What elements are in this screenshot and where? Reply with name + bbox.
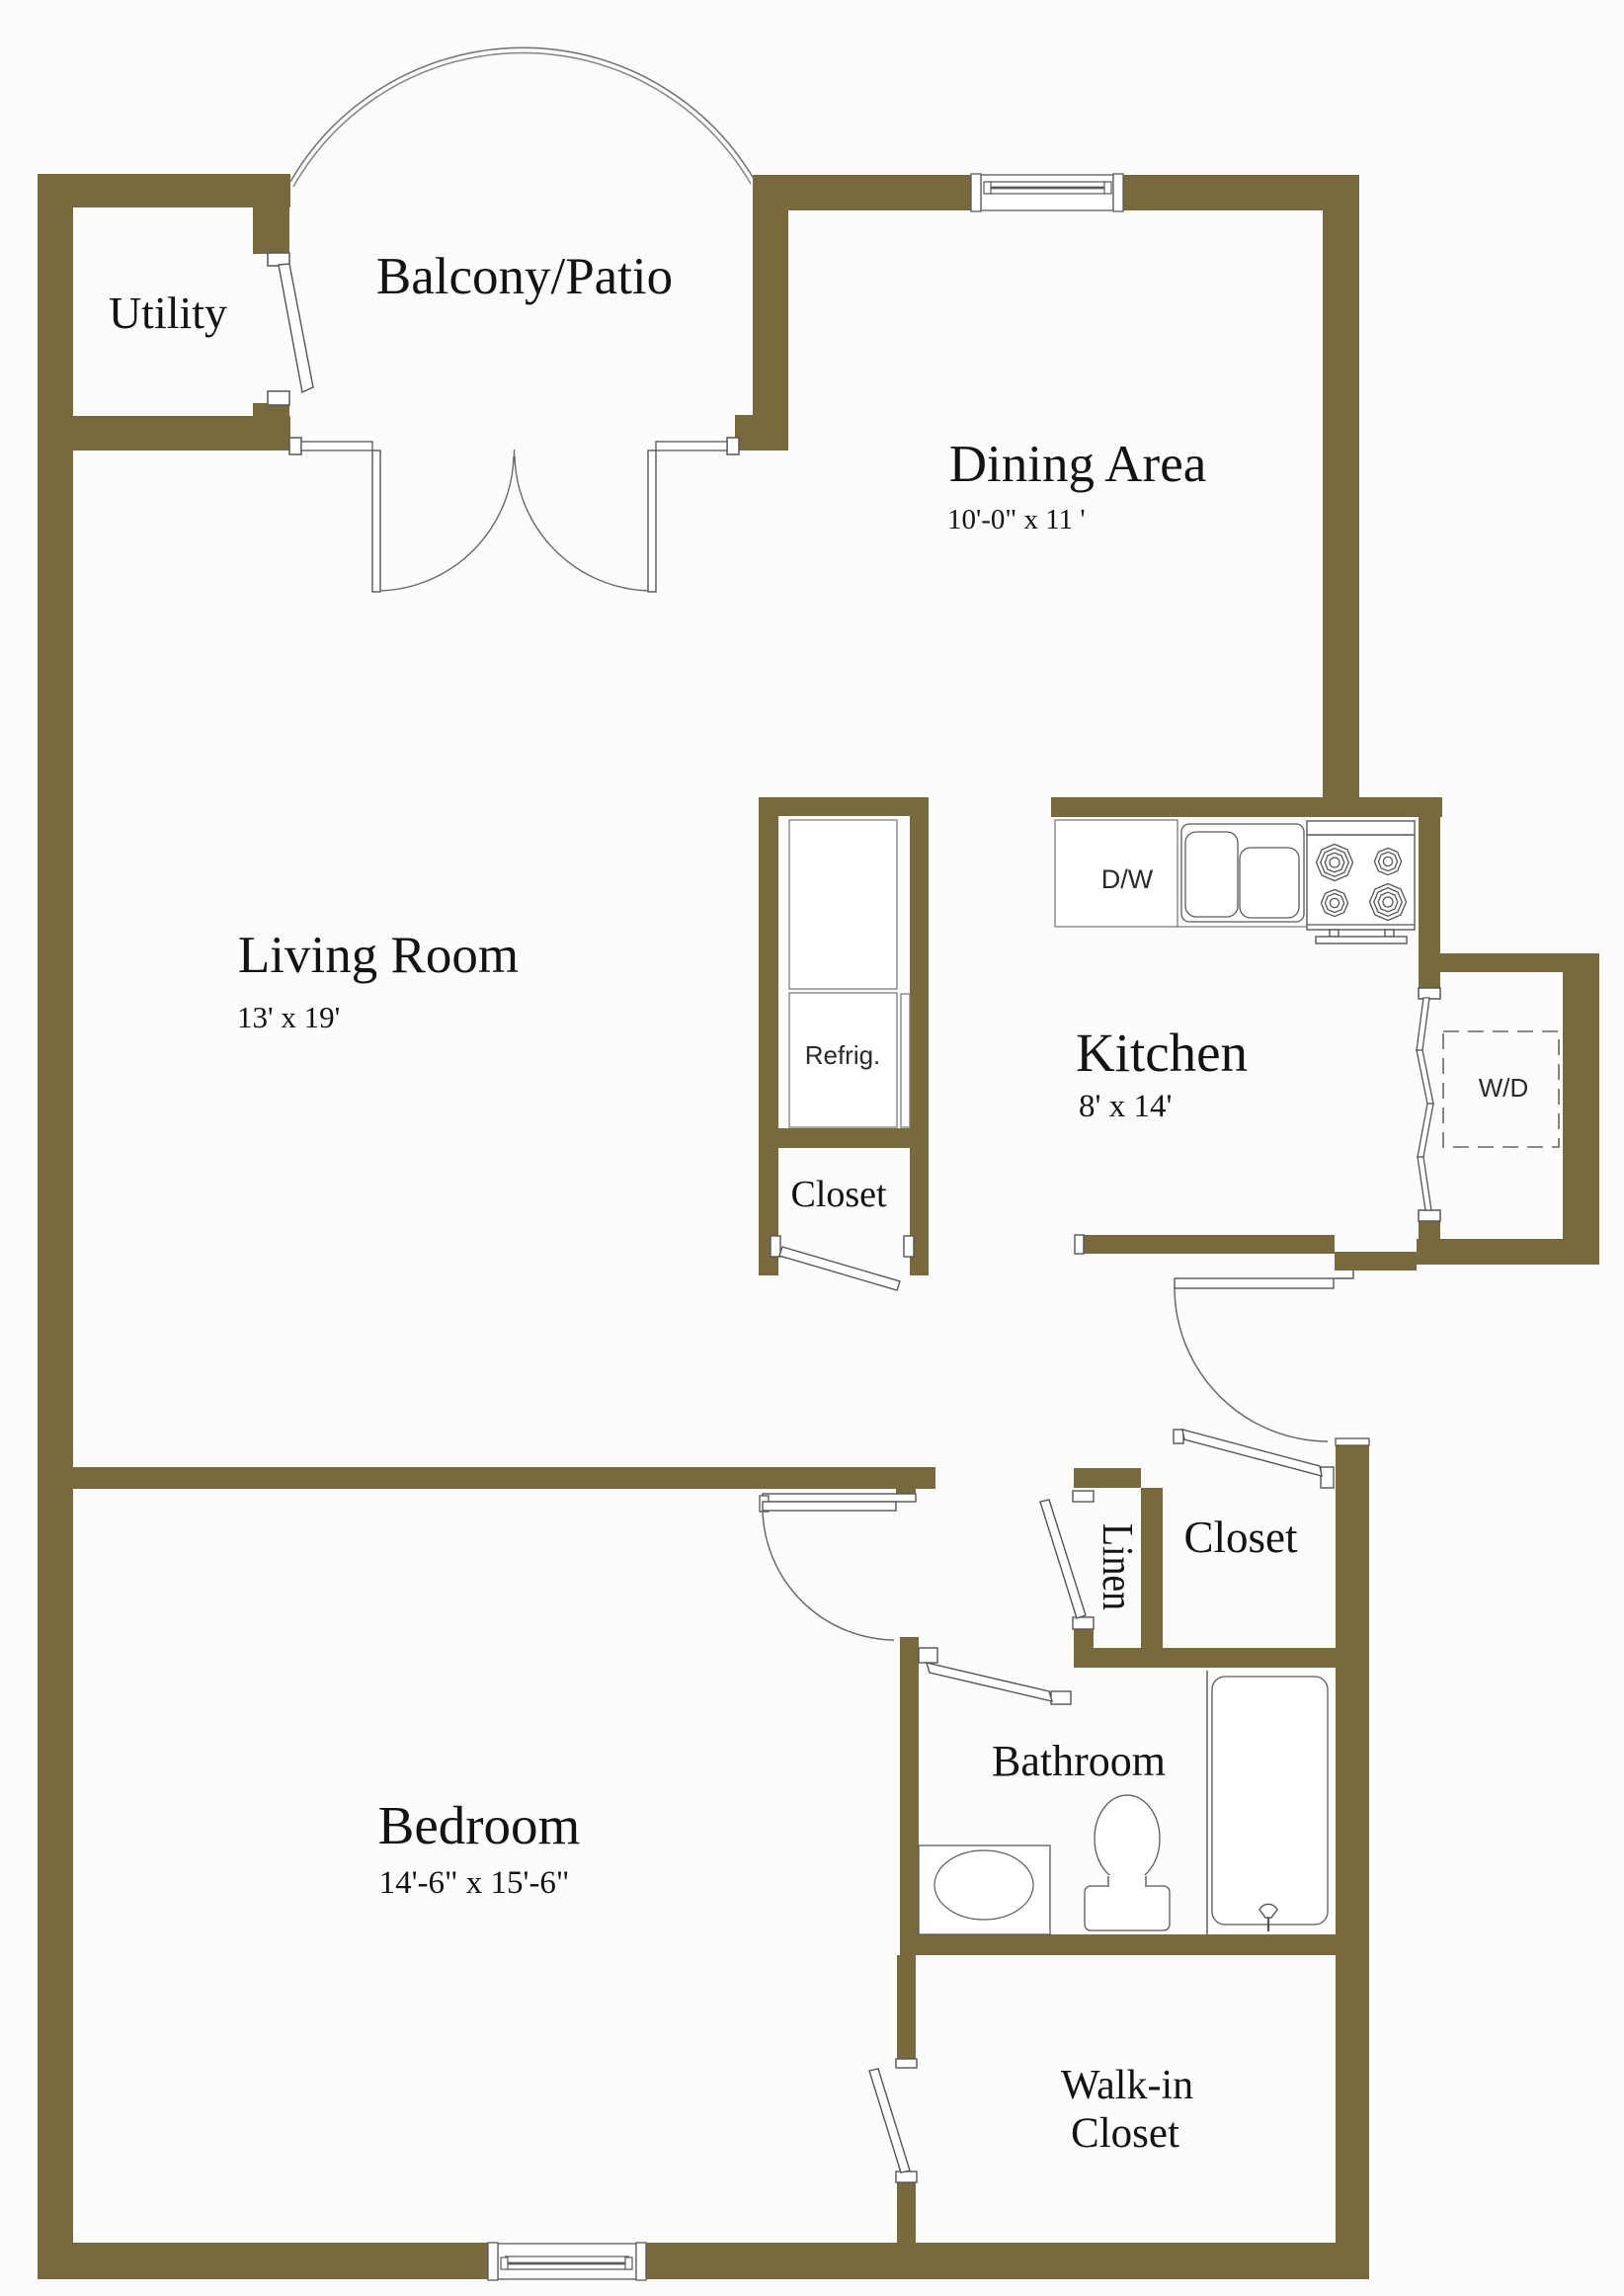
svg-text:Closet: Closet [1183, 1513, 1298, 1562]
svg-text:Bathroom: Bathroom [992, 1737, 1166, 1785]
svg-text:Balcony/Patio: Balcony/Patio [376, 248, 673, 305]
svg-text:Dining Area: Dining Area [949, 436, 1207, 493]
svg-text:D/W: D/W [1101, 864, 1154, 894]
svg-text:10'-0" x 11 ': 10'-0" x 11 ' [947, 504, 1086, 535]
svg-text:Utility: Utility [109, 287, 227, 338]
svg-text:Closet: Closet [790, 1174, 887, 1215]
svg-text:Closet: Closet [1071, 2110, 1179, 2157]
svg-text:W/D: W/D [1479, 1073, 1529, 1103]
svg-text:8' x 14': 8' x 14' [1079, 1089, 1172, 1124]
svg-text:Living Room: Living Room [238, 927, 519, 984]
svg-text:Refrig.: Refrig. [805, 1040, 881, 1070]
svg-text:13' x 19': 13' x 19' [237, 1000, 340, 1034]
svg-text:Bedroom: Bedroom [378, 1795, 581, 1855]
svg-text:Kitchen: Kitchen [1076, 1023, 1248, 1083]
svg-text:14'-6" x 15'-6": 14'-6" x 15'-6" [379, 1865, 570, 1901]
svg-text:Walk-in: Walk-in [1061, 2063, 1193, 2108]
svg-text:Linen: Linen [1094, 1523, 1142, 1610]
